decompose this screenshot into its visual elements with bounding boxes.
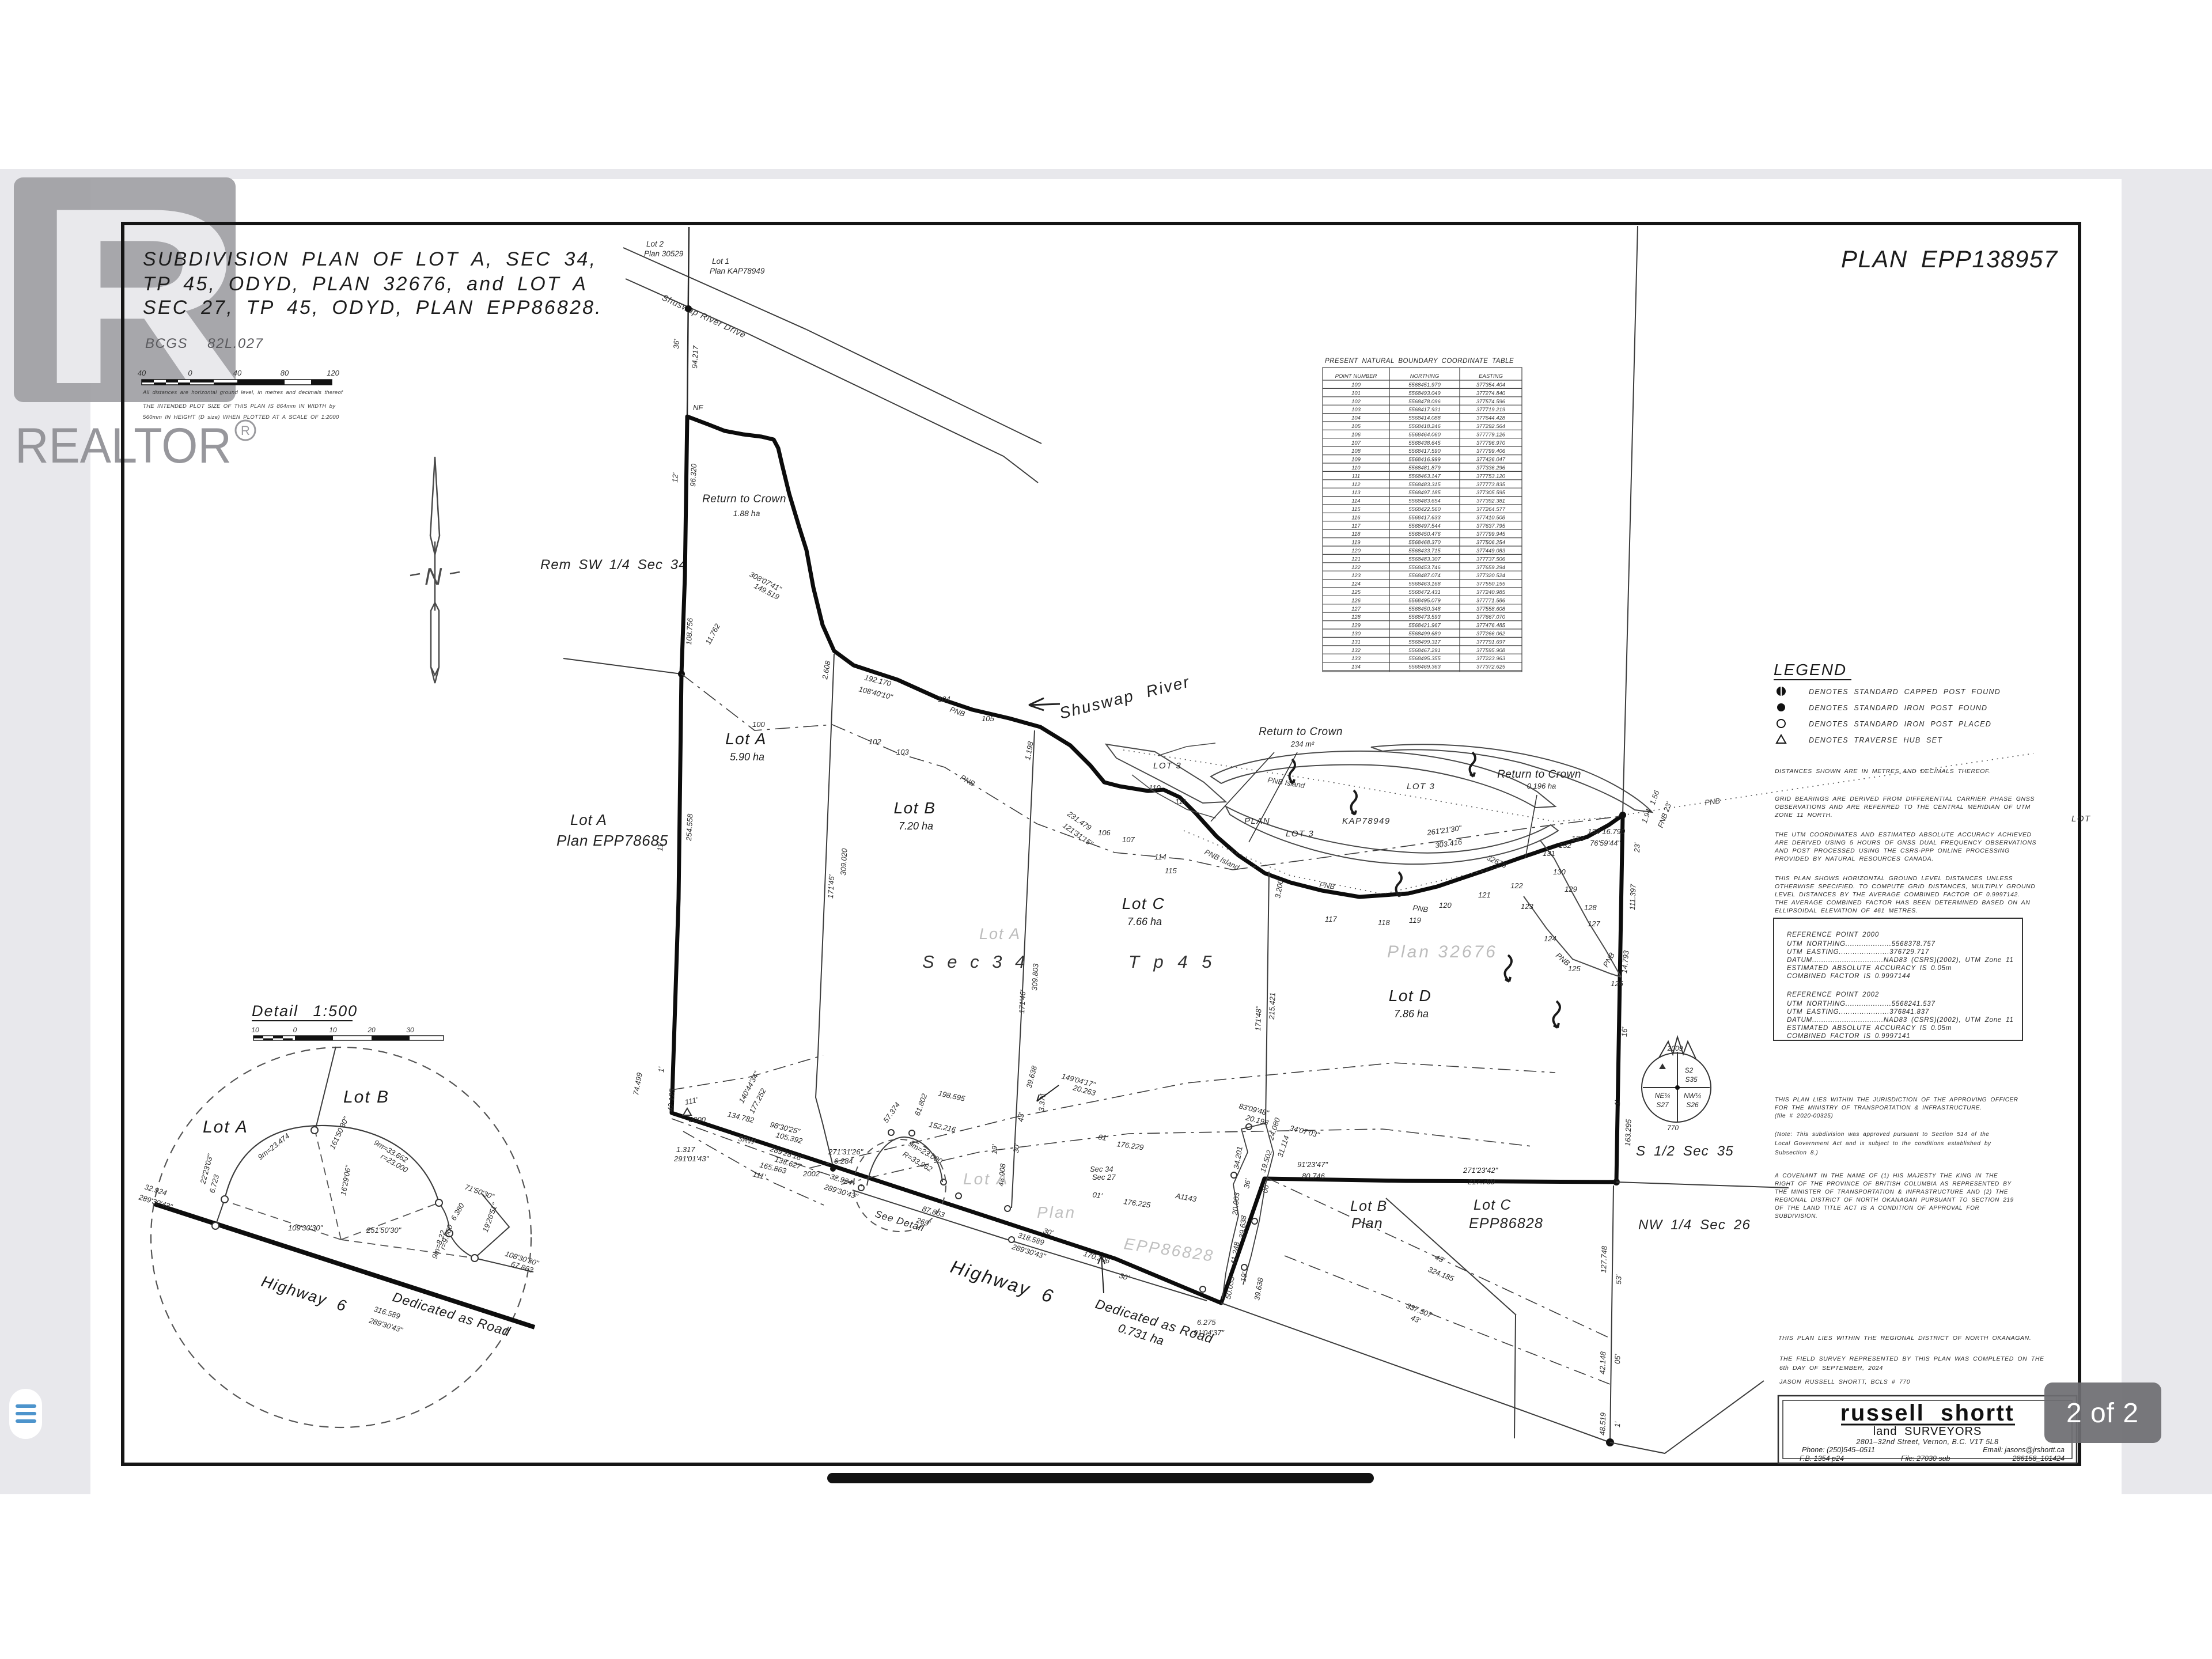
svg-text:110: 110 xyxy=(1149,783,1161,792)
svg-text:377266.062: 377266.062 xyxy=(1476,631,1506,637)
svg-text:Plan EPP78685: Plan EPP78685 xyxy=(556,832,668,849)
svg-text:5568495.355: 5568495.355 xyxy=(1408,656,1441,662)
svg-text:1.317: 1.317 xyxy=(676,1145,695,1154)
svg-text:LOT 3: LOT 3 xyxy=(1153,761,1181,771)
svg-text:LEVEL DISTANCES BY THE AVE: LEVEL DISTANCES BY THE AVERAGE COMBINED … xyxy=(1775,891,2020,898)
svg-text:120: 120 xyxy=(327,369,339,377)
svg-text:PLAN: PLAN xyxy=(1244,816,1270,826)
svg-text:128: 128 xyxy=(1584,903,1597,912)
svg-text:2009: 2009 xyxy=(1667,1044,1683,1052)
svg-text:DENOTES STANDARD IRON POST: DENOTES STANDARD IRON POST PLACED xyxy=(1809,720,1991,728)
svg-text:5568421.967: 5568421.967 xyxy=(1408,623,1441,629)
svg-text:377506.254: 377506.254 xyxy=(1476,540,1505,546)
svg-text:36': 36' xyxy=(1242,1178,1252,1190)
svg-text:106: 106 xyxy=(1098,828,1111,837)
svg-text:NORTHING: NORTHING xyxy=(1410,373,1440,380)
svg-text:377779.126: 377779.126 xyxy=(1476,431,1506,438)
svg-text:116: 116 xyxy=(1351,514,1361,521)
svg-text:Lot A: Lot A xyxy=(979,925,1021,942)
svg-text:0: 0 xyxy=(188,369,192,377)
svg-text:5568464.060: 5568464.060 xyxy=(1408,431,1441,438)
svg-text:PLAN EPP138957: PLAN EPP138957 xyxy=(1841,245,2058,272)
svg-text:122: 122 xyxy=(1351,565,1361,571)
svg-text:111: 111 xyxy=(1352,473,1360,479)
svg-text:DENOTES STANDARD IRON POST: DENOTES STANDARD IRON POST FOUND xyxy=(1809,704,1987,712)
svg-text:Lot B: Lot B xyxy=(1350,1198,1387,1214)
svg-text:94.217: 94.217 xyxy=(690,345,700,369)
svg-text:5568416.999: 5568416.999 xyxy=(1408,457,1441,463)
svg-text:Return to Crown: Return to Crown xyxy=(1497,768,1581,781)
svg-text:127: 127 xyxy=(1351,606,1361,612)
svg-text:10: 10 xyxy=(251,1026,259,1034)
svg-text:Lot B: Lot B xyxy=(894,799,936,817)
svg-text:UTM NORTHING.................: UTM NORTHING....................5568378.… xyxy=(1787,941,1935,948)
svg-text:119: 119 xyxy=(1409,916,1421,925)
svg-text:5568463.168: 5568463.168 xyxy=(1408,581,1441,588)
svg-text:108.756: 108.756 xyxy=(684,618,694,645)
svg-text:5568483.315: 5568483.315 xyxy=(1408,482,1441,488)
svg-text:171'46': 171'46' xyxy=(1017,990,1027,1014)
svg-text:377476.485: 377476.485 xyxy=(1476,623,1506,629)
svg-text:217.769: 217.769 xyxy=(1467,1177,1495,1186)
svg-text:377667.070: 377667.070 xyxy=(1476,614,1506,620)
svg-text:104: 104 xyxy=(938,695,950,703)
svg-text:132: 132 xyxy=(1559,841,1571,850)
svg-text:23': 23' xyxy=(1633,842,1642,853)
svg-text:117: 117 xyxy=(1325,915,1337,923)
svg-text:6.284: 6.284 xyxy=(834,1157,853,1165)
svg-text:(file # 2020-00325): (file # 2020-00325) xyxy=(1775,1113,1833,1119)
svg-text:377595.908: 377595.908 xyxy=(1476,647,1506,654)
svg-text:5568481.879: 5568481.879 xyxy=(1408,465,1441,471)
svg-text:Lot A: Lot A xyxy=(963,1170,1009,1188)
svg-text:123: 123 xyxy=(1521,902,1533,911)
svg-text:120: 120 xyxy=(1439,901,1452,910)
svg-text:5568450.476: 5568450.476 xyxy=(1408,531,1441,537)
svg-text:DENOTES STANDARD CAPPED POS: DENOTES STANDARD CAPPED POST FOUND xyxy=(1809,688,2001,696)
svg-text:117: 117 xyxy=(1351,523,1361,529)
svg-text:377305.595: 377305.595 xyxy=(1476,490,1506,496)
svg-text:12': 12' xyxy=(671,472,680,483)
svg-text:107: 107 xyxy=(1122,835,1135,844)
svg-text:111.397: 111.397 xyxy=(1628,884,1638,910)
svg-text:DATUM.........................: DATUM...............................NAD8… xyxy=(1787,957,2014,964)
svg-text:6.275: 6.275 xyxy=(1197,1318,1216,1327)
svg-text:103: 103 xyxy=(1351,407,1361,413)
svg-text:Lot C: Lot C xyxy=(1474,1197,1512,1213)
svg-text:309.020: 309.020 xyxy=(839,848,849,876)
svg-text:5568463.147: 5568463.147 xyxy=(1408,473,1441,479)
svg-text:S e c 3 4: S e c 3 4 xyxy=(922,952,1029,972)
svg-text:THIS PLAN SHOWS HORIZONTAL: THIS PLAN SHOWS HORIZONTAL GROUND LEVEL … xyxy=(1775,875,2013,882)
svg-text:DATUM.........................: DATUM...............................NAD8… xyxy=(1787,1017,2014,1024)
svg-text:114: 114 xyxy=(1351,498,1360,505)
svg-text:104: 104 xyxy=(1351,415,1361,422)
svg-text:OTHERWISE SPECIFIED. TO COM: OTHERWISE SPECIFIED. TO COMPUTE GRID DIS… xyxy=(1775,883,2035,890)
svg-text:5568469.363: 5568469.363 xyxy=(1408,664,1441,671)
svg-text:5568467.291: 5568467.291 xyxy=(1408,647,1440,654)
svg-text:Sec 27: Sec 27 xyxy=(1092,1173,1116,1181)
svg-text:121: 121 xyxy=(1351,556,1361,562)
svg-text:377240.985: 377240.985 xyxy=(1476,589,1506,596)
svg-text:286158_101424: 286158_101424 xyxy=(2012,1455,2065,1463)
svg-text:80: 80 xyxy=(281,369,289,377)
svg-text:131: 131 xyxy=(1351,639,1361,645)
svg-text:Plan KAP78949: Plan KAP78949 xyxy=(710,267,765,275)
svg-text:N: N xyxy=(425,563,442,590)
svg-text:377637.795: 377637.795 xyxy=(1476,523,1506,529)
svg-text:377753.120: 377753.120 xyxy=(1476,473,1506,479)
svg-text:111: 111 xyxy=(1175,797,1187,806)
svg-text:107: 107 xyxy=(1351,440,1361,446)
svg-text:125: 125 xyxy=(1568,964,1581,973)
svg-text:DENOTES TRAVERSE HUB SET: DENOTES TRAVERSE HUB SET xyxy=(1809,736,1942,744)
svg-text:1.88 ha: 1.88 ha xyxy=(733,509,760,518)
svg-text:7.20 ha: 7.20 ha xyxy=(899,820,933,832)
svg-text:REGIONAL DISTRICT OF NORTH: REGIONAL DISTRICT OF NORTH OKANAGAN PURS… xyxy=(1775,1197,2014,1203)
svg-text:130: 130 xyxy=(1351,631,1361,637)
svg-text:134 16.790: 134 16.790 xyxy=(1588,827,1626,836)
svg-text:A COVENANT IN THE NAME OF: A COVENANT IN THE NAME OF (1) HIS MAJEST… xyxy=(1774,1173,1998,1179)
svg-text:5568414.088: 5568414.088 xyxy=(1408,415,1441,422)
svg-text:126: 126 xyxy=(1351,597,1361,604)
svg-text:102: 102 xyxy=(1351,399,1361,405)
svg-text:108: 108 xyxy=(1351,448,1361,454)
svg-text:THE INTENDED PLOT SIZE OF: THE INTENDED PLOT SIZE OF THIS PLAN IS 8… xyxy=(143,403,336,410)
svg-text:THE AVERAGE COMBINED FACTOR: THE AVERAGE COMBINED FACTOR HAS BEEN DET… xyxy=(1775,899,2030,906)
svg-text:40: 40 xyxy=(138,369,146,377)
svg-text:560mm IN HEIGHT (D size): 560mm IN HEIGHT (D size) WHEN PLOTTED AT… xyxy=(143,414,339,421)
svg-text:113: 113 xyxy=(1351,490,1361,496)
svg-text:FOR THE MINISTRY OF TRANSP: FOR THE MINISTRY OF TRANSPORTATION & INF… xyxy=(1775,1105,1982,1111)
svg-text:TP 45, ODYD, PLAN 32676,: TP 45, ODYD, PLAN 32676, and LOT A xyxy=(143,273,588,295)
svg-text:377292.564: 377292.564 xyxy=(1476,423,1505,430)
svg-text:377719.219: 377719.219 xyxy=(1476,407,1506,413)
svg-text:96.320: 96.320 xyxy=(688,463,698,487)
svg-text:T p 4 5: T p 4 5 xyxy=(1128,952,1217,972)
svg-text:5568418.246: 5568418.246 xyxy=(1408,423,1441,430)
svg-text:LEGEND: LEGEND xyxy=(1774,661,1847,679)
svg-text:5568483.654: 5568483.654 xyxy=(1408,498,1440,505)
svg-text:105: 105 xyxy=(1351,423,1361,430)
svg-text:S35: S35 xyxy=(1685,1075,1698,1084)
svg-text:LOT 3: LOT 3 xyxy=(1286,829,1314,839)
svg-text:309.803: 309.803 xyxy=(1030,963,1040,991)
svg-text:EPP86828: EPP86828 xyxy=(1469,1215,1543,1232)
svg-text:S27: S27 xyxy=(1656,1101,1669,1109)
svg-text:377320.524: 377320.524 xyxy=(1476,573,1505,579)
svg-text:EASTING: EASTING xyxy=(1479,373,1503,380)
svg-text:377791.697: 377791.697 xyxy=(1476,639,1506,645)
svg-text:2002: 2002 xyxy=(802,1169,820,1178)
svg-text:377558.608: 377558.608 xyxy=(1476,606,1506,612)
svg-text:377550.155: 377550.155 xyxy=(1476,581,1506,588)
svg-text:Plan: Plan xyxy=(1351,1215,1383,1232)
svg-text:128: 128 xyxy=(1351,614,1361,620)
svg-text:ELLIPSOIDAL ELEVATION OF 46: ELLIPSOIDAL ELEVATION OF 461 METRES. xyxy=(1775,907,1918,914)
svg-text:114: 114 xyxy=(1154,853,1166,861)
svg-text:109'30'30": 109'30'30" xyxy=(288,1224,324,1232)
svg-text:131: 131 xyxy=(1543,849,1555,858)
svg-text:132: 132 xyxy=(1351,647,1361,654)
svg-text:377392.381: 377392.381 xyxy=(1476,498,1505,505)
svg-text:Lot A: Lot A xyxy=(725,730,767,748)
svg-text:171'45': 171'45' xyxy=(826,874,836,899)
svg-text:ZONE 11 NORTH.: ZONE 11 NORTH. xyxy=(1774,812,1832,819)
svg-text:134: 134 xyxy=(1351,664,1361,671)
svg-text:Lot B: Lot B xyxy=(343,1088,389,1107)
svg-text:112: 112 xyxy=(1351,482,1361,488)
svg-text:100: 100 xyxy=(1351,382,1361,388)
svg-text:163.295: 163.295 xyxy=(1623,1119,1633,1146)
svg-text:5568478.096: 5568478.096 xyxy=(1408,399,1441,405)
svg-text:(Note: This subdivision was: (Note: This subdivision was approved pur… xyxy=(1775,1131,1990,1138)
svg-text:5568422.560: 5568422.560 xyxy=(1408,506,1441,513)
svg-text:5568472.431: 5568472.431 xyxy=(1408,589,1440,596)
svg-text:Lot D: Lot D xyxy=(1389,987,1431,1005)
svg-text:COMBINED FACTOR IS 0.999714: COMBINED FACTOR IS 0.9997141 xyxy=(1787,1033,1910,1040)
svg-text:115: 115 xyxy=(1351,506,1361,513)
svg-text:126: 126 xyxy=(1611,979,1623,988)
svg-text:Return to Crown: Return to Crown xyxy=(702,493,786,505)
svg-text:377771.586: 377771.586 xyxy=(1476,597,1506,604)
svg-text:0: 0 xyxy=(293,1026,297,1034)
svg-text:124: 124 xyxy=(1351,581,1361,588)
svg-text:5568499.680: 5568499.680 xyxy=(1408,631,1441,637)
svg-text:115: 115 xyxy=(1165,866,1177,875)
svg-text:10: 10 xyxy=(329,1026,337,1034)
svg-text:102: 102 xyxy=(869,737,881,746)
svg-text:80.746: 80.746 xyxy=(1302,1172,1325,1180)
svg-text:UTM NORTHING.................: UTM NORTHING....................5568241.… xyxy=(1787,1001,1935,1007)
svg-text:5568499.317: 5568499.317 xyxy=(1408,639,1441,645)
svg-text:land SURVEYORS: land SURVEYORS xyxy=(1873,1425,1982,1438)
svg-text:Return to Crown: Return to Crown xyxy=(1259,726,1343,738)
svg-text:5568487.074: 5568487.074 xyxy=(1408,573,1440,579)
svg-text:53': 53' xyxy=(1614,1274,1623,1285)
svg-text:PRESENT NATURAL BOUNDARY CO: PRESENT NATURAL BOUNDARY COORDINATE TABL… xyxy=(1325,358,1514,365)
svg-text:AND POST PROCESSED USING T: AND POST PROCESSED USING THE CSRS-PPP ON… xyxy=(1774,847,2010,854)
svg-text:Sec 34: Sec 34 xyxy=(1090,1165,1113,1173)
svg-text:100: 100 xyxy=(752,720,765,729)
svg-text:5568417.931: 5568417.931 xyxy=(1408,407,1440,413)
svg-text:THIS PLAN LIES WITHIN THE: THIS PLAN LIES WITHIN THE REGIONAL DISTR… xyxy=(1778,1335,2031,1342)
svg-text:russell shortt: russell shortt xyxy=(1840,1400,2014,1426)
svg-text:377449.083: 377449.083 xyxy=(1476,548,1506,554)
svg-text:ESTIMATED ABSOLUTE ACCURACY: ESTIMATED ABSOLUTE ACCURACY IS 0.05m xyxy=(1787,965,1952,972)
svg-text:7.66 ha: 7.66 ha xyxy=(1127,916,1162,927)
svg-text:377372.625: 377372.625 xyxy=(1476,664,1506,671)
svg-text:GRID BEARINGS ARE DERIVED: GRID BEARINGS ARE DERIVED FROM DIFFERENT… xyxy=(1775,796,2035,802)
svg-text:Email: jasons@jrshortt.ca: Email: jasons@jrshortt.ca xyxy=(1983,1446,2065,1454)
svg-text:OBSERVATIONS AND ARE REFERR: OBSERVATIONS AND ARE REFERRED TO THE CEN… xyxy=(1775,804,2031,810)
svg-text:SUBDIVISION.: SUBDIVISION. xyxy=(1775,1213,1817,1219)
svg-text:5568468.370: 5568468.370 xyxy=(1408,540,1441,546)
svg-text:Lot C: Lot C xyxy=(1122,895,1165,912)
svg-text:All distances are horizonta: All distances are horizontal ground leve… xyxy=(142,389,343,396)
svg-text:5568497.185: 5568497.185 xyxy=(1408,490,1441,496)
svg-text:42.148: 42.148 xyxy=(1598,1351,1607,1374)
svg-text:118: 118 xyxy=(1351,531,1361,537)
svg-text:5568473.593: 5568473.593 xyxy=(1408,614,1441,620)
svg-text:36': 36' xyxy=(672,339,681,349)
svg-text:5568451.970: 5568451.970 xyxy=(1408,382,1441,388)
svg-text:JASON RUSSELL SHORTT, BCLS: JASON RUSSELL SHORTT, BCLS # 770 xyxy=(1779,1378,1910,1385)
svg-text:377799.945: 377799.945 xyxy=(1476,531,1506,537)
svg-text:RIGHT OF THE PROVINCE OF: RIGHT OF THE PROVINCE OF BRITISH COLUMBI… xyxy=(1775,1181,2012,1187)
svg-text:REFERENCE POINT 2000: REFERENCE POINT 2000 xyxy=(1787,931,1879,938)
svg-text:1': 1' xyxy=(1613,1100,1622,1106)
svg-text:5568483.307: 5568483.307 xyxy=(1408,556,1441,562)
svg-text:SEC 27, TP 45, ODYD, PLAN: SEC 27, TP 45, ODYD, PLAN EPP86828. xyxy=(143,297,603,319)
svg-text:123: 123 xyxy=(1351,573,1361,579)
svg-text:377354.404: 377354.404 xyxy=(1476,382,1505,388)
svg-text:THE UTM COORDINATES AND ES: THE UTM COORDINATES AND ESTIMATED ABSOLU… xyxy=(1775,831,2032,838)
svg-text:271'31'26": 271'31'26" xyxy=(828,1147,864,1156)
svg-text:48.519: 48.519 xyxy=(1598,1412,1607,1435)
svg-text:133: 133 xyxy=(1351,656,1361,662)
svg-text:43': 43' xyxy=(1016,1112,1025,1123)
svg-text:377410.508: 377410.508 xyxy=(1476,514,1506,521)
svg-text:Lot 1: Lot 1 xyxy=(712,257,729,266)
svg-text:291'01'43": 291'01'43" xyxy=(673,1154,710,1163)
svg-text:NE¼: NE¼ xyxy=(1655,1092,1671,1100)
svg-text:5.90 ha: 5.90 ha xyxy=(730,751,764,763)
svg-text:377574.596: 377574.596 xyxy=(1476,399,1506,405)
svg-text:377336.296: 377336.296 xyxy=(1476,465,1506,471)
svg-text:R: R xyxy=(241,423,250,438)
svg-text:5568493.049: 5568493.049 xyxy=(1408,390,1441,396)
svg-text:76'59'44": 76'59'44" xyxy=(1590,839,1621,847)
svg-text:103: 103 xyxy=(896,748,909,756)
svg-text:125: 125 xyxy=(1351,589,1361,596)
svg-text:2000: 2000 xyxy=(688,1115,706,1124)
svg-text:101: 101 xyxy=(1351,390,1361,396)
svg-text:DISTANCES SHOWN ARE IN MET: DISTANCES SHOWN ARE IN METRES AND DECIMA… xyxy=(1775,768,1990,775)
svg-text:377799.406: 377799.406 xyxy=(1476,448,1506,454)
svg-text:Subsection 8.): Subsection 8.) xyxy=(1775,1150,1818,1156)
svg-text:Plan 30529: Plan 30529 xyxy=(644,249,684,258)
svg-text:File: 27030 sub: File: 27030 sub xyxy=(1901,1455,1950,1463)
svg-text:119: 119 xyxy=(1351,540,1361,546)
svg-text:01': 01' xyxy=(1098,1132,1109,1142)
svg-text:1': 1' xyxy=(657,1066,666,1073)
svg-text:Lot 2: Lot 2 xyxy=(646,240,664,248)
svg-text:251'50'30": 251'50'30" xyxy=(366,1226,402,1234)
svg-text:NF: NF xyxy=(693,403,703,412)
svg-text:5568433.715: 5568433.715 xyxy=(1408,548,1441,554)
svg-text:ESTIMATED ABSOLUTE ACCURACY: ESTIMATED ABSOLUTE ACCURACY IS 0.05m xyxy=(1787,1025,1952,1032)
svg-text:5568497.544: 5568497.544 xyxy=(1408,523,1440,529)
svg-text:BCGS 82L.027: BCGS 82L.027 xyxy=(145,336,264,351)
svg-text:5568453.746: 5568453.746 xyxy=(1408,565,1441,571)
svg-text:215.421: 215.421 xyxy=(1267,993,1277,1020)
svg-text:KAP78949: KAP78949 xyxy=(1342,816,1391,826)
svg-text:ARE DERIVED USING 5 HOURS: ARE DERIVED USING 5 HOURS OF GNSS DUAL F… xyxy=(1774,839,2036,846)
svg-text:254.558: 254.558 xyxy=(684,813,695,842)
svg-text:30: 30 xyxy=(406,1026,414,1034)
svg-text:05': 05' xyxy=(1613,1354,1622,1364)
svg-text:377796.970: 377796.970 xyxy=(1476,440,1506,446)
svg-text:234 m²: 234 m² xyxy=(1290,740,1315,748)
svg-text:30': 30' xyxy=(1012,1143,1021,1154)
svg-text:UTM EASTING..................: UTM EASTING......................376729.… xyxy=(1787,949,1929,956)
svg-text:171'48": 171'48" xyxy=(1253,1005,1263,1031)
svg-text:19': 19' xyxy=(990,1144,999,1155)
svg-text:Lot A: Lot A xyxy=(570,811,607,828)
svg-text:109: 109 xyxy=(1351,457,1361,463)
svg-text:377737.506: 377737.506 xyxy=(1476,556,1506,562)
svg-text:377659.294: 377659.294 xyxy=(1476,565,1505,571)
svg-text:129: 129 xyxy=(1351,623,1361,629)
svg-text:OF THE LAND TITLE ACT IS: OF THE LAND TITLE ACT IS A CONDITION OF … xyxy=(1775,1205,1979,1211)
svg-text:01': 01' xyxy=(1092,1190,1103,1200)
svg-text:5568495.079: 5568495.079 xyxy=(1408,597,1441,604)
svg-text:UTM EASTING..................: UTM EASTING......................376841.… xyxy=(1787,1009,1929,1016)
svg-text:2801–32nd Street, Vernon, B.C.: 2801–32nd Street, Vernon, B.C. V1T 5L8 xyxy=(1855,1438,1998,1446)
svg-text:SUBDIVISION PLAN OF LOT A,: SUBDIVISION PLAN OF LOT A, SEC 34, xyxy=(143,248,597,270)
svg-text:REFERENCE POINT 2002: REFERENCE POINT 2002 xyxy=(1787,991,1879,998)
svg-text:Plan 32676: Plan 32676 xyxy=(1387,942,1498,961)
svg-text:COMBINED FACTOR IS 0.999714: COMBINED FACTOR IS 0.9997144 xyxy=(1787,973,1910,980)
svg-text:5568417.633: 5568417.633 xyxy=(1408,514,1441,521)
svg-text:106: 106 xyxy=(1351,431,1361,438)
svg-text:377644.428: 377644.428 xyxy=(1476,415,1506,422)
svg-text:Phone: (250)545–0511: Phone: (250)545–0511 xyxy=(1802,1446,1875,1454)
svg-text:Detail 1:500: Detail 1:500 xyxy=(252,1002,358,1020)
svg-text:0.196 ha: 0.196 ha xyxy=(1527,782,1556,790)
svg-text:127: 127 xyxy=(1588,919,1600,928)
svg-text:Rem SW 1/4 Sec 34: Rem SW 1/4 Sec 34 xyxy=(540,557,687,573)
svg-text:THIS PLAN LIES WITHIN THE: THIS PLAN LIES WITHIN THE JURISDICTION O… xyxy=(1775,1097,2018,1103)
svg-text:S2: S2 xyxy=(1685,1066,1694,1074)
svg-text:5568417.590: 5568417.590 xyxy=(1408,448,1441,454)
svg-text:S 1/2 Sec 35: S 1/2 Sec 35 xyxy=(1636,1143,1734,1159)
svg-text:Lot A: Lot A xyxy=(203,1118,248,1137)
svg-text:PROVIDED BY NATURAL RESOURC: PROVIDED BY NATURAL RESOURCES CANADA. xyxy=(1775,855,1934,862)
svg-text:127.748: 127.748 xyxy=(1599,1245,1609,1273)
svg-text:133: 133 xyxy=(1571,834,1584,843)
svg-text:377274.840: 377274.840 xyxy=(1476,390,1506,396)
svg-text:5568450.348: 5568450.348 xyxy=(1408,606,1441,612)
svg-text:121: 121 xyxy=(1478,891,1491,899)
svg-text:770: 770 xyxy=(1667,1124,1679,1132)
svg-text:7.86 ha: 7.86 ha xyxy=(1394,1008,1429,1020)
svg-text:40: 40 xyxy=(233,369,242,377)
svg-text:5568438.645: 5568438.645 xyxy=(1408,440,1441,446)
svg-text:124: 124 xyxy=(1544,934,1556,943)
svg-text:LOT 3: LOT 3 xyxy=(1407,782,1435,791)
svg-text:105: 105 xyxy=(982,714,994,723)
svg-text:16': 16' xyxy=(1620,1027,1629,1037)
svg-text:118: 118 xyxy=(1378,918,1390,927)
svg-text:6th DAY OF SEPTEMBER, 2024: 6th DAY OF SEPTEMBER, 2024 xyxy=(1779,1365,1883,1372)
svg-text:POINT NUMBER: POINT NUMBER xyxy=(1335,373,1377,380)
svg-text:377426.047: 377426.047 xyxy=(1476,457,1506,463)
svg-text:377773.835: 377773.835 xyxy=(1476,482,1506,488)
svg-text:120: 120 xyxy=(1351,548,1361,554)
svg-text:Local Government Act and i: Local Government Act and is subject to t… xyxy=(1775,1141,1991,1147)
svg-text:271'23'42": 271'23'42" xyxy=(1463,1166,1499,1175)
svg-text:2 of 2: 2 of 2 xyxy=(2066,1398,2139,1429)
svg-text:377223.963: 377223.963 xyxy=(1476,656,1506,662)
svg-text:20: 20 xyxy=(367,1026,376,1034)
svg-text:1': 1' xyxy=(1613,1421,1622,1427)
svg-text:NW 1/4 Sec 26: NW 1/4 Sec 26 xyxy=(1638,1217,1751,1233)
svg-text:91'23'47": 91'23'47" xyxy=(1297,1160,1328,1169)
svg-text:122: 122 xyxy=(1510,881,1523,890)
svg-text:LOT: LOT xyxy=(2071,814,2091,824)
